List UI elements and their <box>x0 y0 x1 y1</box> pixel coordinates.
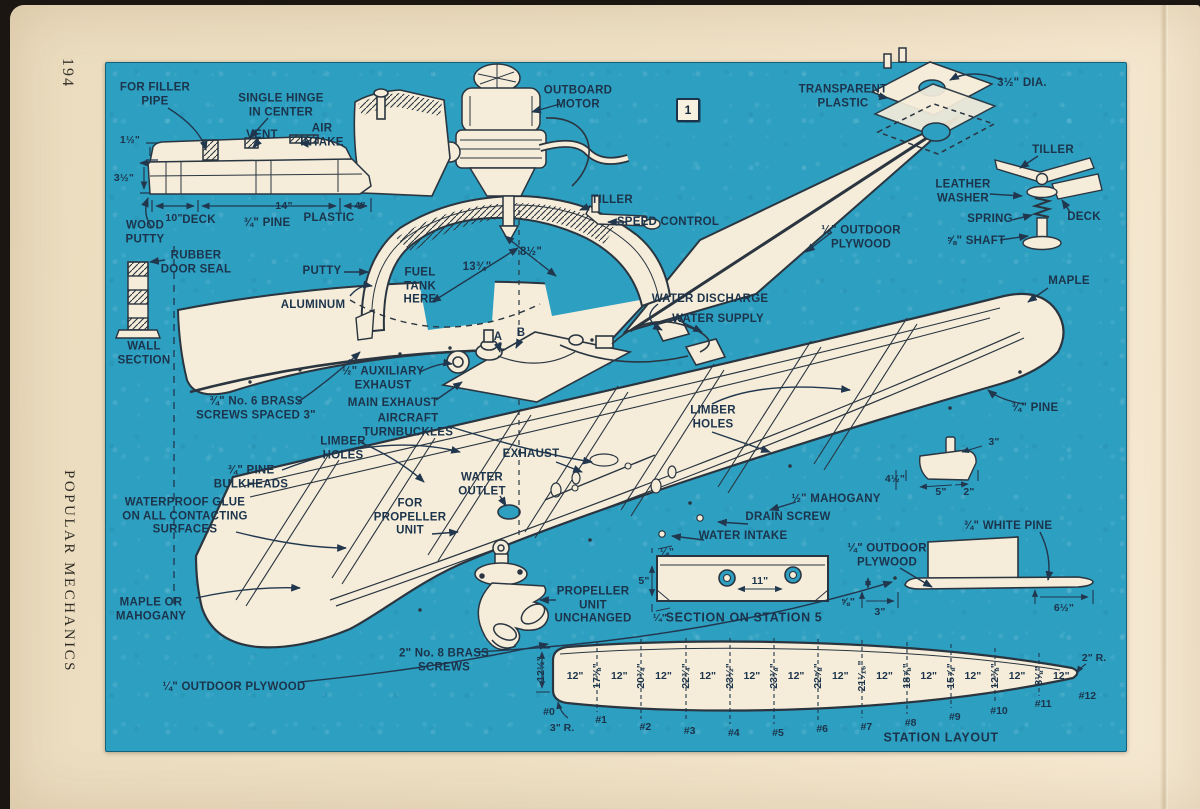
station-breadth-2: 20¾" <box>635 663 647 688</box>
callout-pine-bulkheads: ¾" PINE BULKHEADS <box>214 464 288 491</box>
station-spacing-8: 12" <box>920 670 937 682</box>
station-breadth-6: 22⅝" <box>812 663 824 688</box>
callout-maple: MAPLE <box>1048 275 1090 289</box>
callout-aluminum: ALUMINUM <box>281 299 346 313</box>
callout-water-intake: WATER INTAKE <box>699 530 788 544</box>
callout-plastic: PLASTIC <box>304 212 355 226</box>
page-number: 194 <box>58 58 76 88</box>
station-id-1: #1 <box>595 714 607 726</box>
dim-3-5: 3½" <box>114 172 134 184</box>
callout-water-discharge: WATER DISCHARGE <box>652 293 769 307</box>
station-spacing-1: 12" <box>611 670 628 682</box>
callout-single-hinge: SINGLE HINGE IN CENTER <box>238 92 323 119</box>
station-id-11: #11 <box>1035 698 1052 710</box>
callout-transparent-plastic: TRANSPARENT PLASTIC <box>799 83 888 110</box>
magazine-title: POPULAR MECHANICS <box>60 470 77 673</box>
callout-exhaust: EXHAUST <box>503 448 560 462</box>
dim-sec-quarter-top: ¼" <box>660 546 674 558</box>
callout-for-propeller-unit: FOR PROPELLER UNIT <box>374 498 447 539</box>
station-spacing-3: 12" <box>699 670 716 682</box>
callout-drain-screw: DRAIN SCREW <box>745 511 830 525</box>
callout-shaft: ⅝" SHAFT <box>947 235 1006 249</box>
station-id-0: #0 <box>543 706 555 718</box>
station-id-9: #9 <box>949 711 961 723</box>
callout-for-filler-pipe: FOR FILLER PIPE <box>120 81 190 108</box>
station-id-10: #10 <box>990 705 1008 717</box>
callout-main-exhaust: MAIN EXHAUST <box>348 397 439 411</box>
station-breadth-5: 23⅜" <box>768 663 780 688</box>
callout-tiller-mid: TILLER <box>591 194 633 208</box>
callout-aux-exhaust: ½" AUXILIARY EXHAUST <box>342 365 424 392</box>
station-spacing-0: 12" <box>567 670 584 682</box>
callout-water-outlet: WATER OUTLET <box>458 471 506 498</box>
dim-fin-3: 3" <box>988 436 999 448</box>
callout-putty: PUTTY <box>303 265 342 279</box>
dim-10: 10" <box>165 212 182 224</box>
point-b: B <box>517 327 526 341</box>
station-spacing-2: 12" <box>655 670 672 682</box>
callout-fuel-tank: FUEL TANK HERE <box>404 267 437 308</box>
point-a: A <box>494 331 503 345</box>
dim-13-75: 13¾" <box>463 261 492 275</box>
dim-4: 4" <box>354 200 365 212</box>
station-id-4: #4 <box>728 727 740 739</box>
dim-sec-quarter-bottom: ¼" <box>653 612 667 624</box>
callout-wall-section: WALL SECTION <box>118 340 171 367</box>
station-id-6: #6 <box>816 723 828 735</box>
station-spacing-4: 12" <box>744 670 761 682</box>
callout-aircraft-turnbuckles: AIRCRAFT TURNBUCKLES <box>363 412 453 439</box>
station-id-8: #8 <box>905 717 917 729</box>
callout-white-pine: ¾" WHITE PINE <box>964 520 1053 534</box>
dim-1-5: 1½" <box>120 134 140 146</box>
callout-outboard-motor: OUTBOARD MOTOR <box>544 84 612 111</box>
station-breadth-7: 21¹⁄₁₆" <box>856 660 868 691</box>
callout-plywood-bottom-left: ¼" OUTDOOR PLYWOOD <box>162 681 305 695</box>
callout-limber-holes-right: LIMBER HOLES <box>690 404 736 431</box>
callout-water-supply: WATER SUPPLY <box>672 313 764 327</box>
callout-speed-control: SPEED CONTROL <box>617 216 719 230</box>
dim-8-5: 8½" <box>520 246 542 260</box>
callout-brass-screws-no8: 2" No. 8 BRASS SCREWS <box>399 647 489 674</box>
station-left-height: 12½" <box>535 656 547 681</box>
station-id-2: #2 <box>640 721 652 733</box>
callout-plywood-top-right: ¼" OUTDOOR PLYWOOD <box>821 224 901 251</box>
callout-waterproof-glue: WATERPROOF GLUE ON ALL CONTACTING SURFAC… <box>122 497 247 538</box>
callout-rubber-door-seal: RUBBER DOOR SEAL <box>161 249 232 276</box>
callout-leather-washer: LEATHER WASHER <box>935 178 990 205</box>
station-breadth-4: 23½" <box>724 663 736 688</box>
dim-fin-2: 2" <box>963 486 974 498</box>
dim-wp-65: 6½" <box>1054 602 1074 614</box>
dim-14: 14" <box>275 200 292 212</box>
callout-pine-under-deck: ¾" PINE <box>244 217 291 231</box>
station-breadth-10: 12⅜" <box>989 663 1001 688</box>
station-tip-radius: 2" R. <box>1082 652 1106 664</box>
station-spacing-11: 12" <box>1053 670 1070 682</box>
station-id-7: #7 <box>861 721 873 733</box>
title-section-station5: SECTION ON STATION 5 <box>666 611 823 626</box>
station-breadth-1: 17⅜" <box>591 663 603 688</box>
callout-tiller-right: TILLER <box>1032 144 1074 158</box>
callout-air-intake: AIR INTAKE <box>300 122 343 149</box>
callout-mahogany-half: ½" MAHOGANY <box>791 493 880 507</box>
callout-brass-screws-no6: ¾" No. 6 BRASS SCREWS SPACED 3" <box>196 395 316 422</box>
station-spacing-7: 12" <box>876 670 893 682</box>
callout-maple-or-mahogany: MAPLE OR MAHOGANY <box>116 596 186 623</box>
station-breadth-11: 8⅛" <box>1033 666 1045 686</box>
callout-spring: SPRING <box>967 213 1013 227</box>
station-spacing-10: 12" <box>1009 670 1026 682</box>
callout-pine-hull: ¾" PINE <box>1012 402 1059 416</box>
title-station-layout: STATION LAYOUT <box>883 731 998 746</box>
callout-deck-left: DECK <box>182 214 216 228</box>
station-breadth-8: 18⅞" <box>900 663 912 688</box>
callout-wood-putty: WOOD PUTTY <box>126 219 165 246</box>
station-spacing-9: 12" <box>965 670 982 682</box>
station-id-3: #3 <box>684 725 696 737</box>
figure-number-badge: 1 <box>676 98 700 122</box>
station-breadth-9: 15⅞" <box>945 663 957 688</box>
dim-wp-58: ⅝" <box>841 596 855 608</box>
station-left-radius: 3" R. <box>550 722 574 734</box>
callout-deck-right: DECK <box>1067 211 1101 225</box>
dim-sec-11: 11" <box>752 575 769 587</box>
station-breadth-3: 22¾" <box>679 663 691 688</box>
station-spacing-5: 12" <box>788 670 805 682</box>
station-id-5: #5 <box>772 727 784 739</box>
dim-fin-4-5: 4½" <box>885 473 905 485</box>
dim-3-5-dia: 3½" DIA. <box>997 77 1047 91</box>
callout-propeller-unit: PROPELLER UNIT UNCHANGED <box>555 586 632 627</box>
dim-sec-5: 5" <box>638 575 649 587</box>
station-spacing-6: 12" <box>832 670 849 682</box>
callout-limber-holes-left: LIMBER HOLES <box>320 435 366 462</box>
callout-plywood-right: ¼" OUTDOOR PLYWOOD <box>847 542 927 569</box>
dim-fin-5: 5" <box>935 486 946 498</box>
station-id-12: #12 <box>1079 690 1097 702</box>
callout-vent: VENT <box>246 129 278 143</box>
dim-wp-3: 3" <box>874 606 885 618</box>
